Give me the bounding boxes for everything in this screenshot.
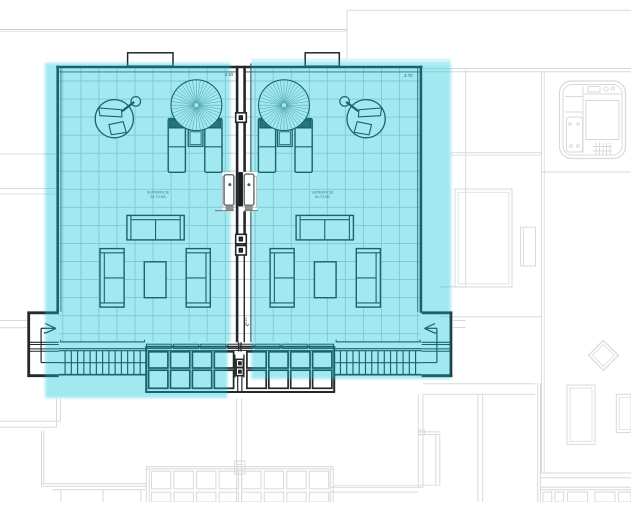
- svg-text:9.45: 9.45: [244, 318, 248, 325]
